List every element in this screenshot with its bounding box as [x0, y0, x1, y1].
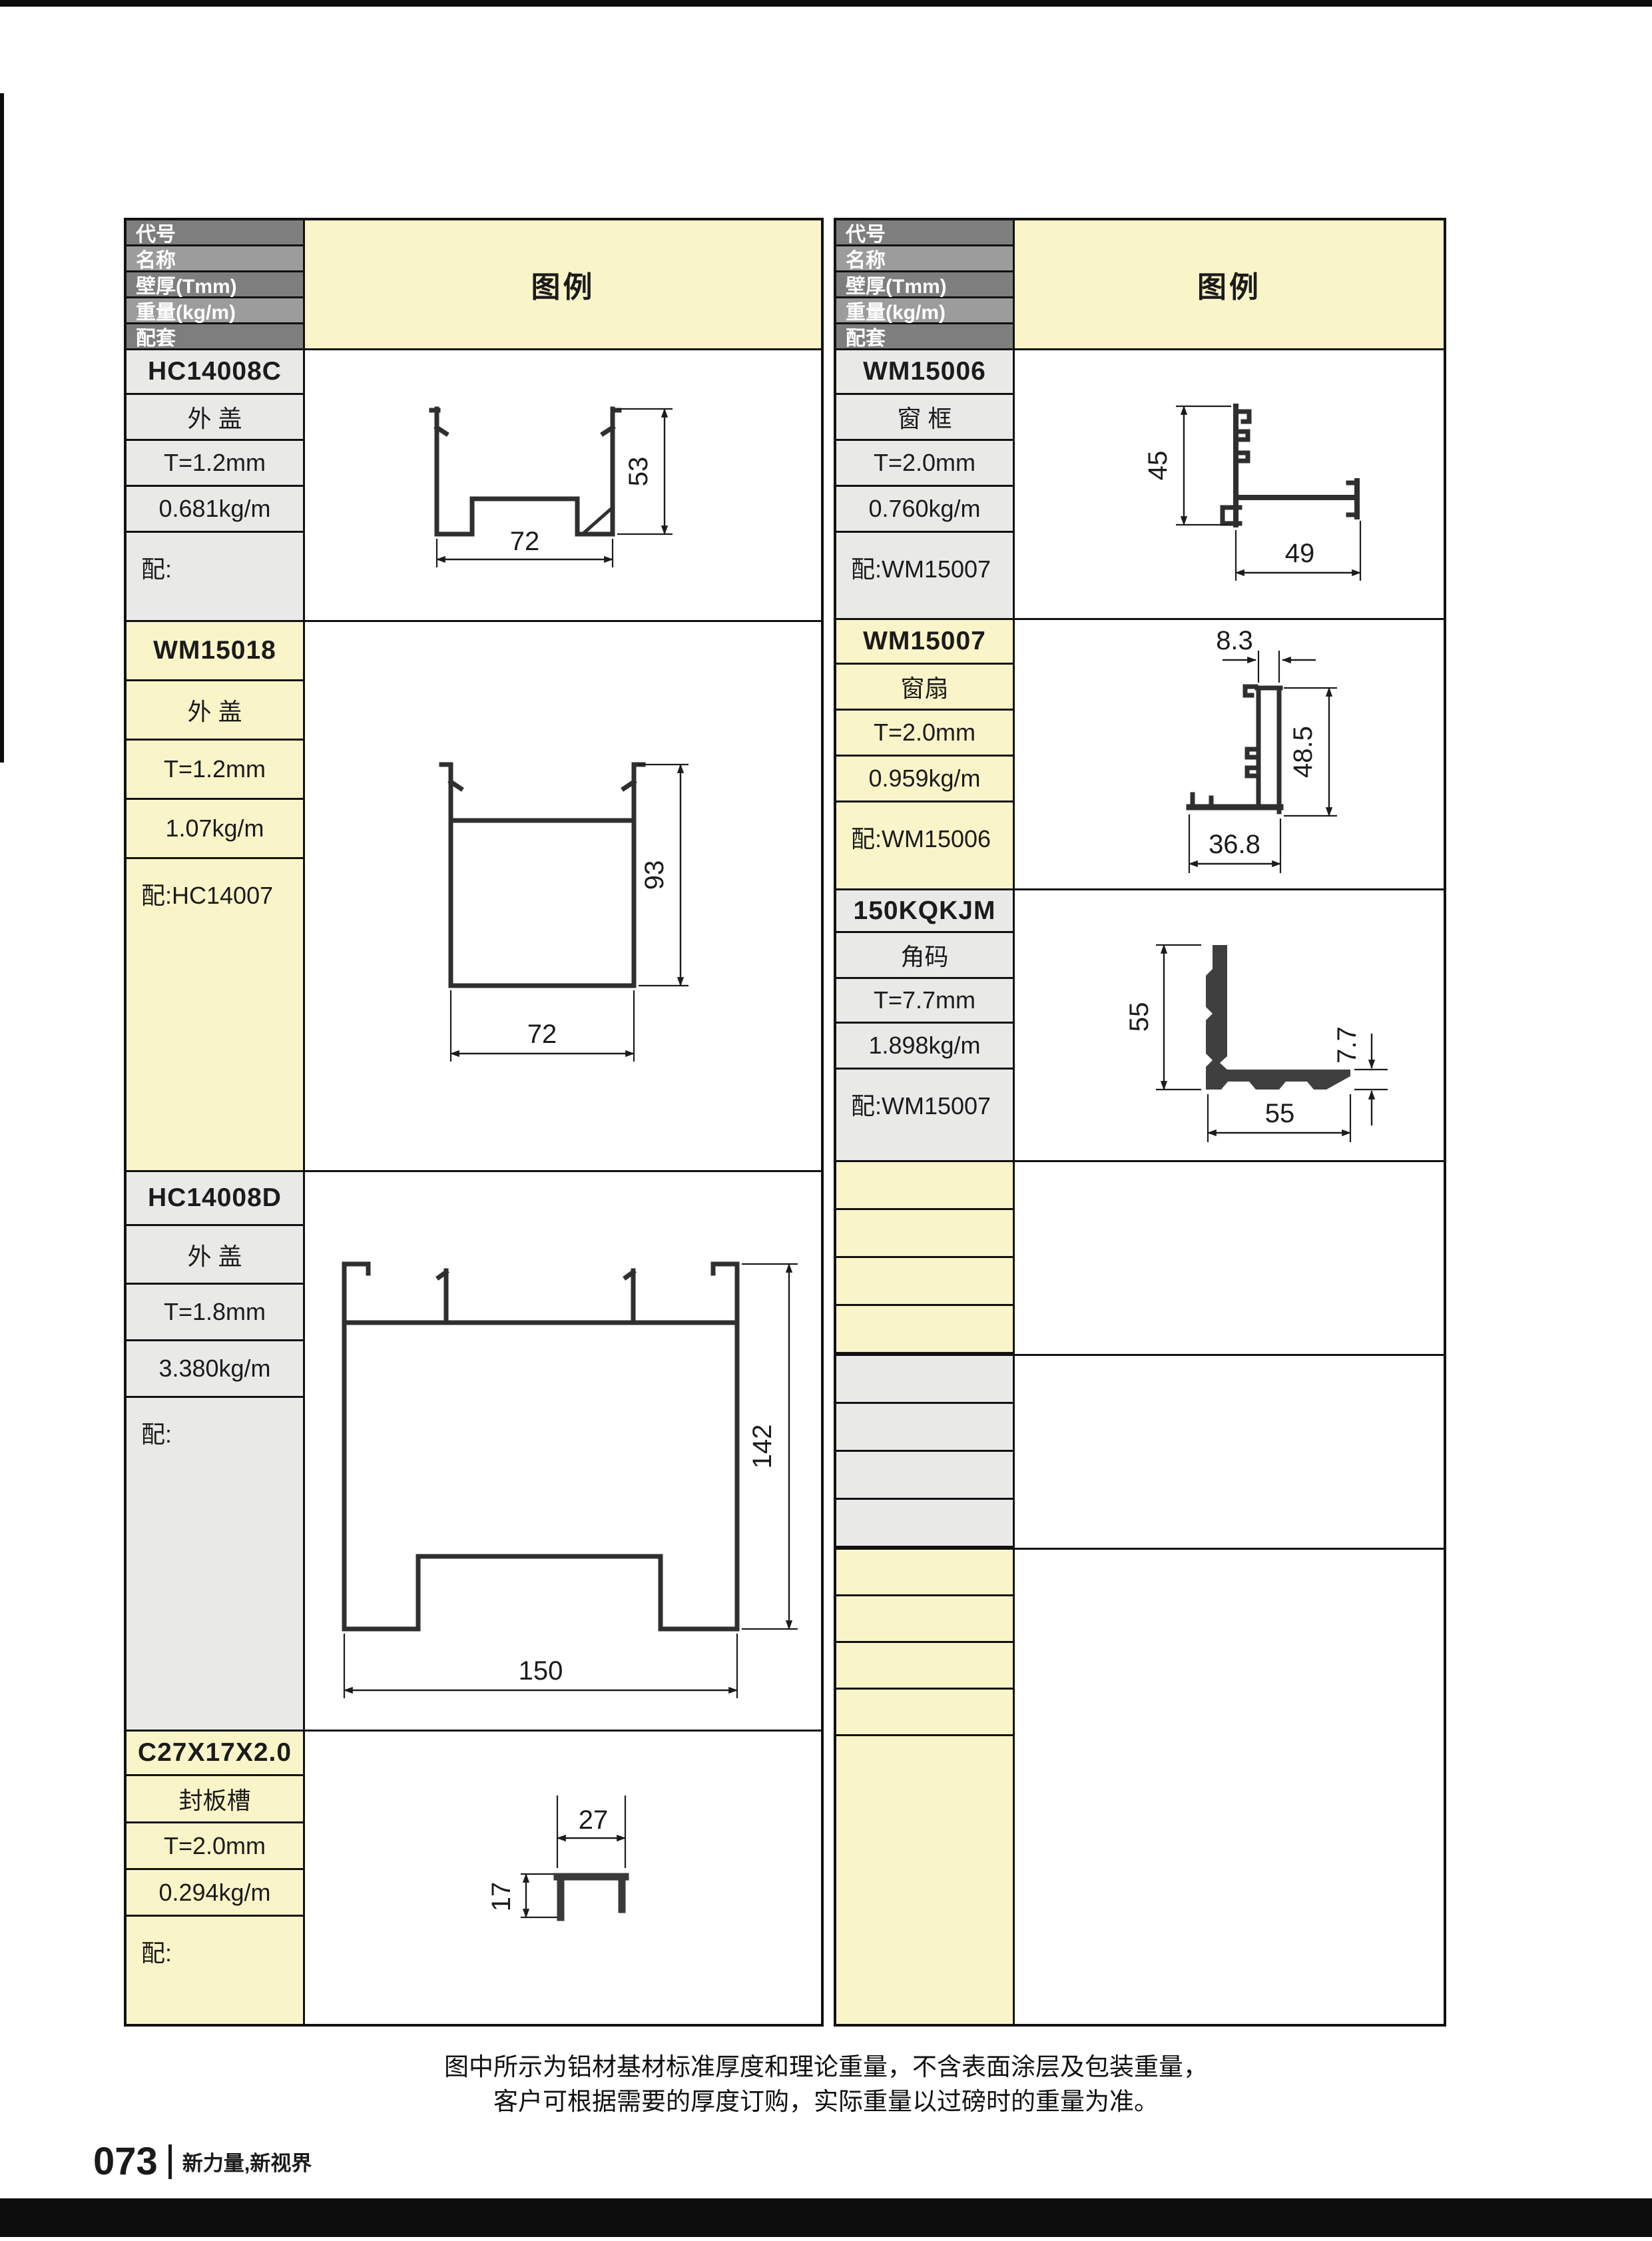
header-cell-weight: 重量(kg/m)	[127, 298, 303, 322]
legend-header: 图例	[1015, 220, 1444, 348]
top-rule-bar	[0, 0, 1652, 7]
footer-divider	[168, 2144, 172, 2179]
header-cell-weight: 重量(kg/m)	[836, 298, 1013, 322]
wall-thickness: T=1.2mm	[127, 441, 303, 485]
catalog-page: 代号 名称 壁厚(Tmm) 重量(kg/m) 配套 图例 HC14008C 外 …	[0, 0, 1652, 2241]
profile-block-wm15018: WM15018 外 盖 T=1.2mm 1.07kg/m 配:HC14007 9…	[127, 622, 821, 1170]
profile-name: 外 盖	[127, 1226, 303, 1283]
profile-name: 角码	[836, 933, 1013, 977]
profile-code: HC14008D	[127, 1172, 303, 1224]
matching-profile: 配:HC14007	[127, 859, 303, 1170]
matching-profile: 配:	[127, 533, 303, 620]
empty-profile-block	[836, 1356, 1444, 1548]
footer-note-line1: 图中所示为铝材基材标准厚度和理论重量，不含表面涂层及包装重量，	[0, 2050, 1652, 2084]
header-cell-match: 配套	[836, 324, 1013, 348]
dim-height: 93	[640, 860, 669, 890]
empty-cell	[836, 1306, 1013, 1352]
empty-cell	[836, 1452, 1013, 1498]
empty-cell	[836, 1500, 1013, 1546]
footer-note-line2: 客户可根据需要的厚度订购，实际重量以过磅时的重量为准。	[0, 2084, 1652, 2119]
weight-value: 1.07kg/m	[127, 800, 303, 857]
profile-name: 封板槽	[127, 1776, 303, 1821]
wall-thickness: T=1.8mm	[127, 1285, 303, 1339]
profile-name: 窗 框	[836, 395, 1013, 439]
header-cell-name: 名称	[836, 246, 1013, 270]
empty-cell	[836, 1736, 1013, 2024]
header-cell-thickness: 壁厚(Tmm)	[836, 272, 1013, 296]
weight-value: 3.380kg/m	[127, 1341, 303, 1396]
page-footer: 073 新力量,新视界	[93, 2139, 312, 2184]
profile-drawing: 142 150	[305, 1172, 821, 1730]
footer-note: 图中所示为铝材基材标准厚度和理论重量，不含表面涂层及包装重量， 客户可根据需要的…	[0, 2050, 1652, 2119]
profile-block-wm15007: WM15007 窗扇 T=2.0mm 0.959kg/m 配:WM15006	[836, 620, 1444, 888]
empty-cell	[836, 1356, 1013, 1402]
matching-profile: 配:WM15006	[836, 802, 1013, 888]
wall-thickness: T=2.0mm	[127, 1823, 303, 1868]
dim-width: 72	[527, 1020, 557, 1049]
legend-header: 图例	[305, 220, 821, 348]
wall-thickness: T=1.2mm	[127, 741, 303, 798]
empty-cell	[836, 1550, 1013, 1594]
weight-value: 0.681kg/m	[127, 487, 303, 531]
matching-profile: 配:	[127, 1917, 303, 2024]
right-profile-table: 代号 名称 壁厚(Tmm) 重量(kg/m) 配套 图例 WM15006 窗 框…	[834, 218, 1446, 2027]
header-cell-name: 名称	[127, 246, 303, 270]
profile-code: WM15018	[127, 622, 303, 679]
table-header-right: 代号 名称 壁厚(Tmm) 重量(kg/m) 配套 图例	[836, 220, 1444, 348]
empty-cell	[836, 1643, 1013, 1688]
weight-value: 0.959kg/m	[836, 757, 1013, 800]
profile-name: 外 盖	[127, 681, 303, 739]
dim-width: 150	[519, 1656, 563, 1686]
empty-profile-block	[836, 1550, 1444, 2024]
empty-profile-block	[836, 1162, 1444, 1354]
empty-drawing-cell	[1015, 1356, 1444, 1548]
empty-drawing-cell	[1015, 1550, 1444, 2024]
dim-width: 36.8	[1209, 830, 1260, 859]
profile-code: C27X17X2.0	[127, 1732, 303, 1774]
empty-cell	[836, 1404, 1013, 1450]
profile-block-hc14008c: HC14008C 外 盖 T=1.2mm 0.681kg/m 配: 72	[127, 350, 821, 620]
empty-cell	[836, 1210, 1013, 1256]
footer-tagline: 新力量,新视界	[182, 2146, 312, 2176]
header-cell-thickness: 壁厚(Tmm)	[127, 272, 303, 296]
profile-drawing: 8.3 48.5 36.8	[1015, 620, 1444, 888]
dim-height: 55	[1125, 1002, 1154, 1032]
wall-thickness: T=7.7mm	[836, 979, 1013, 1022]
dim-height: 45	[1143, 451, 1173, 481]
header-cell-match: 配套	[127, 324, 303, 348]
empty-cell	[836, 1162, 1013, 1208]
matching-profile: 配:WM15007	[836, 533, 1013, 618]
profile-code: WM15007	[836, 620, 1013, 663]
weight-value: 1.898kg/m	[836, 1024, 1013, 1068]
weight-value: 0.760kg/m	[836, 487, 1013, 531]
empty-drawing-cell	[1015, 1162, 1444, 1354]
dim-width: 72	[510, 527, 540, 556]
dim-height: 17	[487, 1882, 516, 1912]
dim-thickness: 7.7	[1332, 1026, 1362, 1064]
profile-drawing: 45 49	[1015, 350, 1444, 618]
dim-width: 27	[579, 1805, 609, 1835]
profile-code: WM15006	[836, 350, 1013, 393]
profile-drawing: 72 53	[305, 350, 821, 620]
profile-block-c27x17: C27X17X2.0 封板槽 T=2.0mm 0.294kg/m 配: 27 1…	[127, 1732, 821, 2024]
empty-cell	[836, 1258, 1013, 1304]
dim-width: 49	[1285, 539, 1315, 568]
empty-cell	[836, 1690, 1013, 1734]
dim-height: 53	[624, 457, 653, 487]
profile-block-150kqkjm: 150KQKJM 角码 T=7.7mm 1.898kg/m 配:WM15007 …	[836, 890, 1444, 1160]
dim-height: 142	[748, 1425, 777, 1469]
profile-code: 150KQKJM	[836, 890, 1013, 931]
left-edge-mark	[0, 93, 4, 763]
profile-drawing: 27 17	[305, 1732, 821, 2024]
profile-drawing: 55 55 7.7	[1015, 890, 1444, 1160]
profile-name: 外 盖	[127, 395, 303, 439]
profile-name: 窗扇	[836, 665, 1013, 709]
dim-width: 55	[1265, 1099, 1295, 1128]
dim-height: 48.5	[1288, 726, 1318, 778]
dim-top-width: 8.3	[1216, 626, 1253, 655]
profile-block-wm15006: WM15006 窗 框 T=2.0mm 0.760kg/m 配:WM15007	[836, 350, 1444, 618]
left-profile-table: 代号 名称 壁厚(Tmm) 重量(kg/m) 配套 图例 HC14008C 外 …	[124, 218, 824, 2027]
empty-cell	[836, 1596, 1013, 1641]
weight-value: 0.294kg/m	[127, 1870, 303, 1915]
header-cell-code: 代号	[127, 220, 303, 244]
wall-thickness: T=2.0mm	[836, 441, 1013, 485]
header-cell-code: 代号	[836, 220, 1013, 244]
wall-thickness: T=2.0mm	[836, 711, 1013, 755]
bottom-rule-bar	[0, 2198, 1652, 2237]
profile-drawing: 93 72	[305, 622, 821, 1170]
page-number: 073	[93, 2139, 158, 2184]
profile-block-hc14008d: HC14008D 外 盖 T=1.8mm 3.380kg/m 配: 14	[127, 1172, 821, 1730]
matching-profile: 配:	[127, 1398, 303, 1730]
matching-profile: 配:WM15007	[836, 1070, 1013, 1160]
table-header-left: 代号 名称 壁厚(Tmm) 重量(kg/m) 配套 图例	[127, 220, 821, 348]
profile-code: HC14008C	[127, 350, 303, 393]
